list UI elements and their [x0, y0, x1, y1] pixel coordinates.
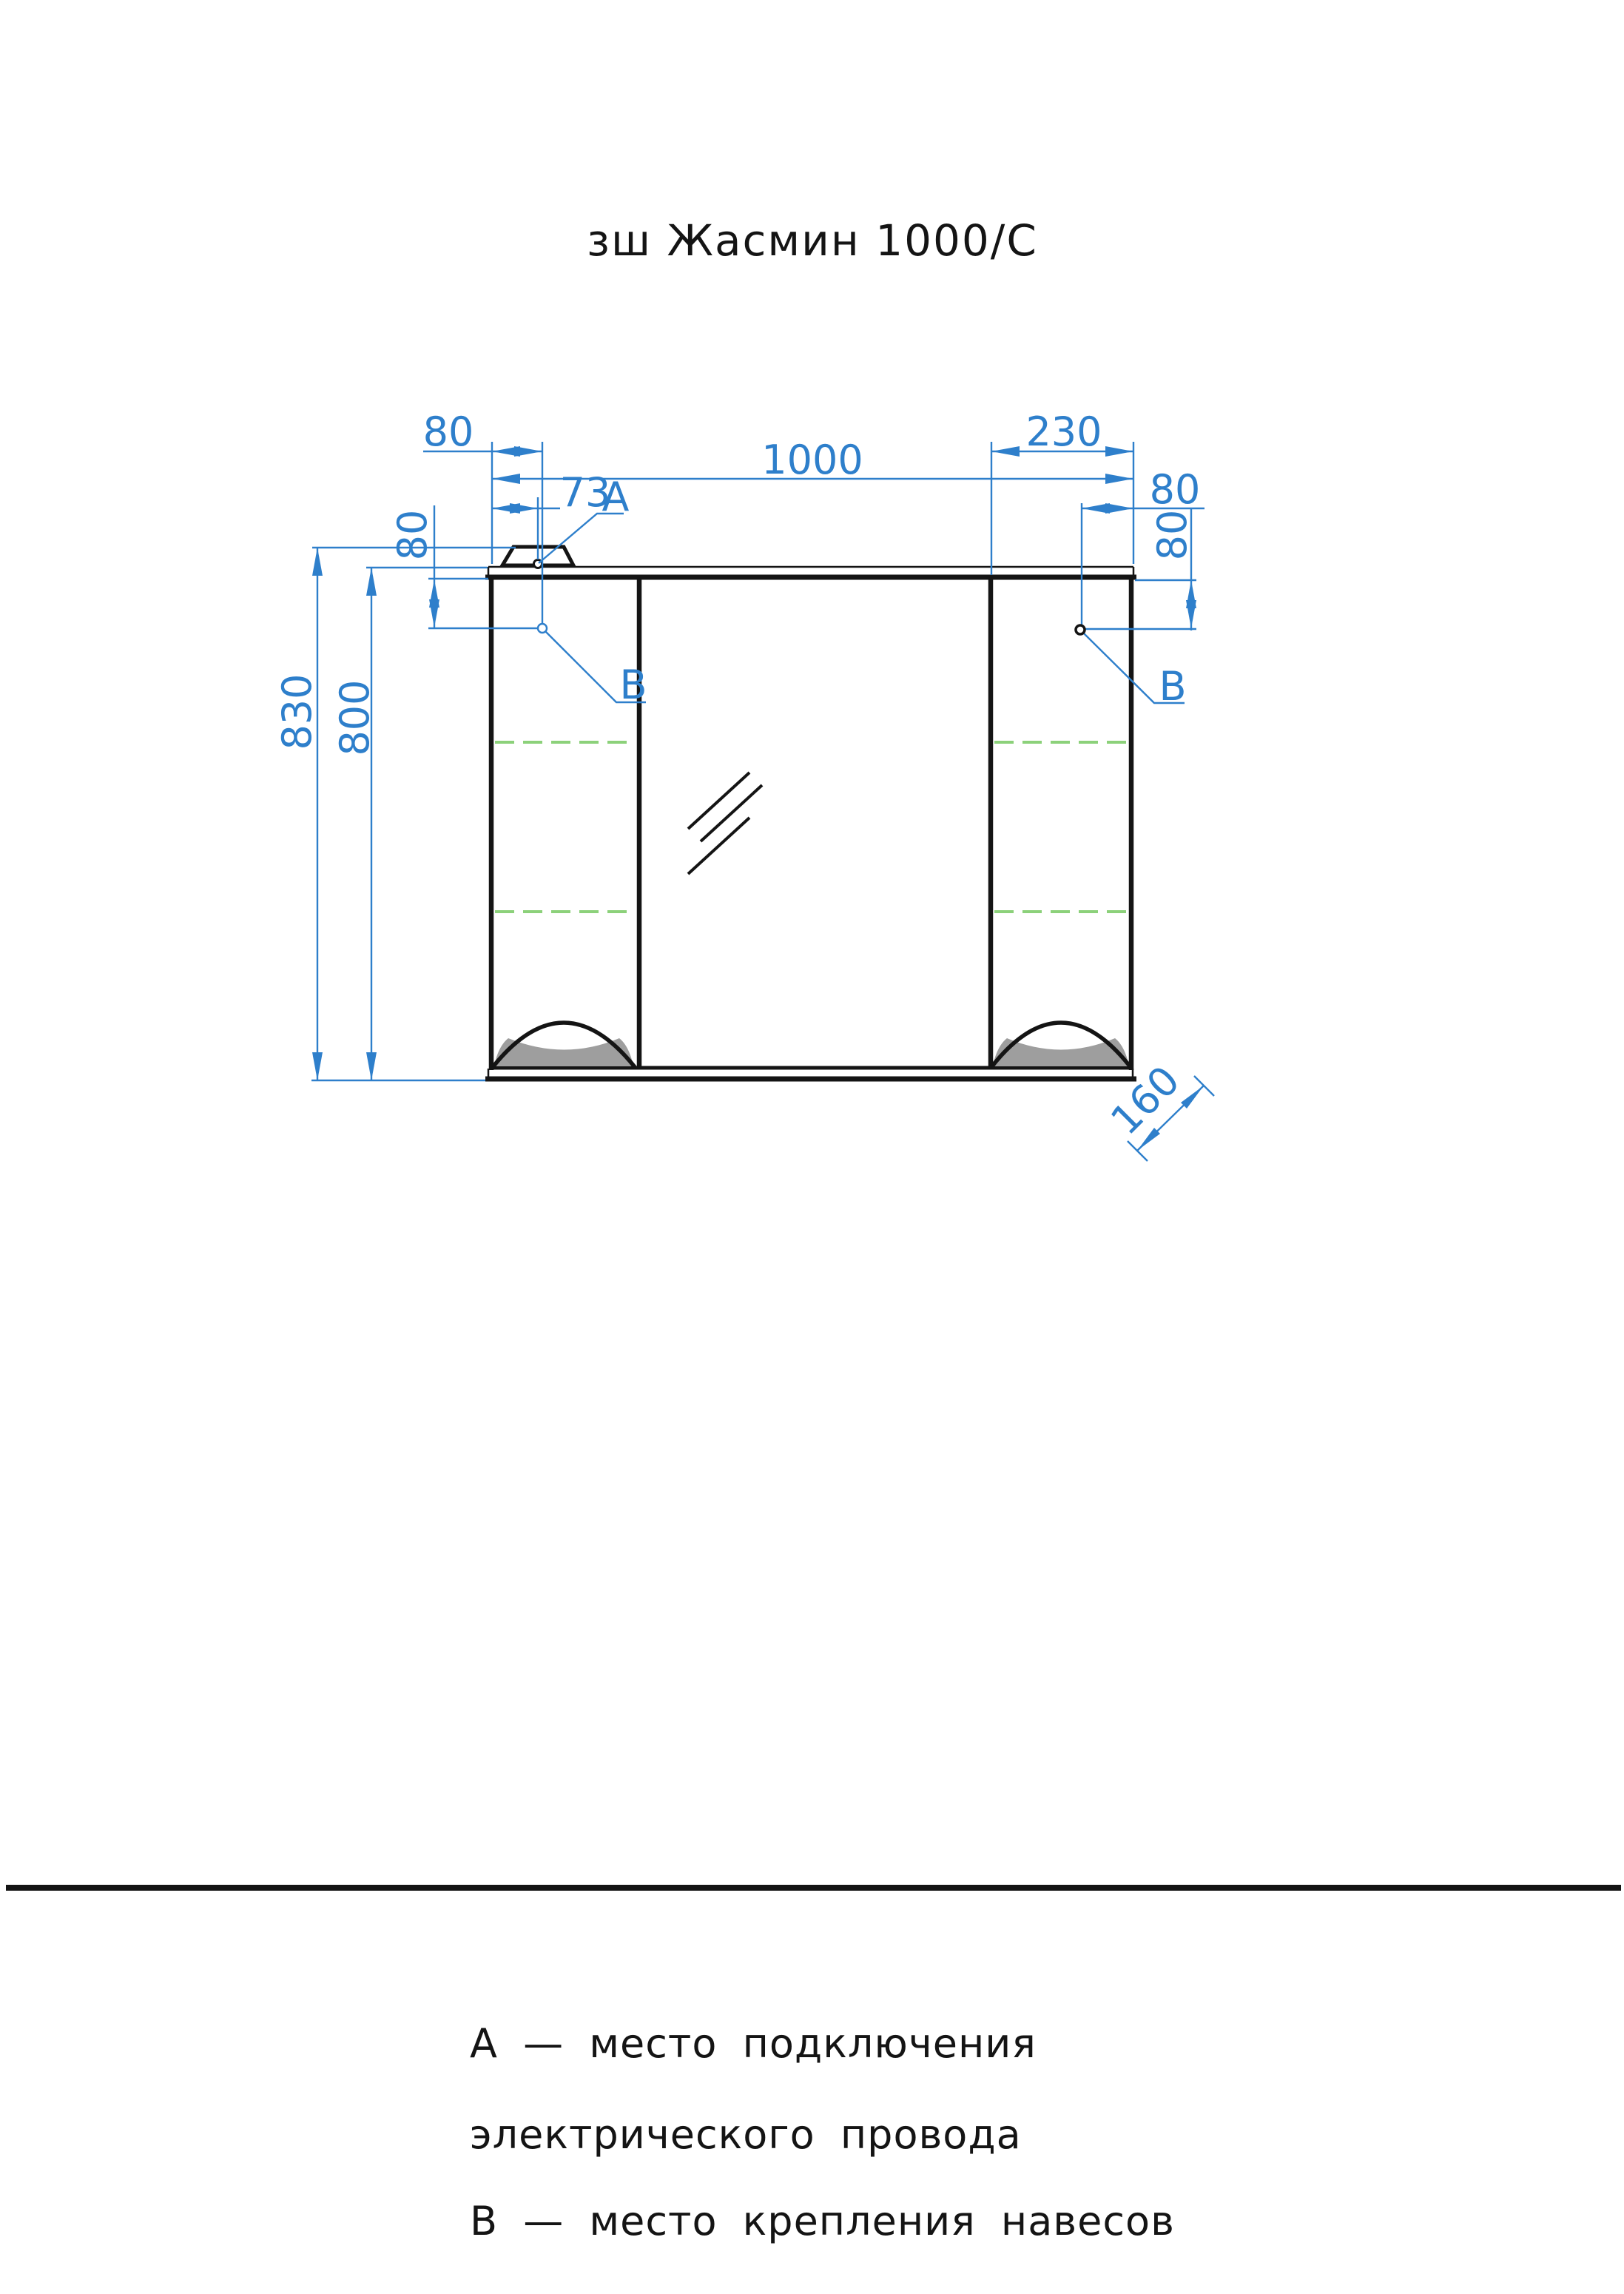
- arrow-80r-right: [1105, 503, 1133, 514]
- dimension-labels: 80 73 А 1000 230 80 80 80 830 800 160 В …: [274, 408, 1200, 1144]
- door-handles: [493, 1023, 1131, 1067]
- technical-drawing-page: зш Жасмин 1000/С: [0, 0, 1624, 2294]
- legend-line-2: электрического провода: [470, 2111, 1022, 2158]
- arrow-80dropL-down: [429, 599, 439, 628]
- dim-label-80-drop-right: 80: [1149, 510, 1196, 561]
- dim-label-80-drop-left: 80: [389, 510, 436, 561]
- dimension-arrows: [312, 446, 1204, 1151]
- legend: А — место подключения электрического про…: [470, 2020, 1175, 2244]
- marker-label-B-right: В: [1159, 663, 1186, 710]
- drawing-title: зш Жасмин 1000/С: [587, 215, 1038, 266]
- cabinet-outline: [485, 547, 1136, 1079]
- arrow-230-right: [1105, 446, 1133, 457]
- legend-line-3: В — место крепления навесов: [470, 2198, 1175, 2244]
- arrow-830-up: [312, 548, 323, 576]
- arrow-80l-right: [514, 446, 542, 457]
- dim-label-160: 160: [1102, 1057, 1188, 1143]
- marker-label-B-left: В: [619, 662, 647, 708]
- legend-line-1: А — место подключения: [470, 2020, 1037, 2067]
- drawing-canvas: зш Жасмин 1000/С: [0, 0, 1624, 2294]
- dim-label-1000: 1000: [761, 437, 863, 483]
- arrow-230-left: [991, 446, 1020, 457]
- arrow-80dropR-down: [1186, 600, 1196, 628]
- arrow-1000-left: [492, 474, 520, 484]
- dim-label-80-right: 80: [1150, 466, 1201, 513]
- dim-label-230: 230: [1025, 408, 1102, 455]
- dim-label-80-left: 80: [423, 408, 474, 455]
- arrow-1000-right: [1105, 474, 1133, 484]
- arrow-800-up: [366, 568, 377, 596]
- marker-label-A: А: [602, 474, 630, 520]
- dim-label-800: 800: [331, 679, 378, 756]
- mirror-hatch: [688, 773, 762, 874]
- arrow-800-down: [366, 1052, 377, 1080]
- dim-label-830: 830: [274, 673, 320, 750]
- hanger-marker-left-circle: [538, 624, 547, 633]
- arrow-830-down: [312, 1052, 323, 1080]
- mirror-hatch-stroke-1: [688, 773, 749, 829]
- shelf-lines: [495, 742, 1128, 912]
- hanger-marker-right-circle: [1076, 625, 1085, 634]
- arrow-73-right: [510, 503, 538, 514]
